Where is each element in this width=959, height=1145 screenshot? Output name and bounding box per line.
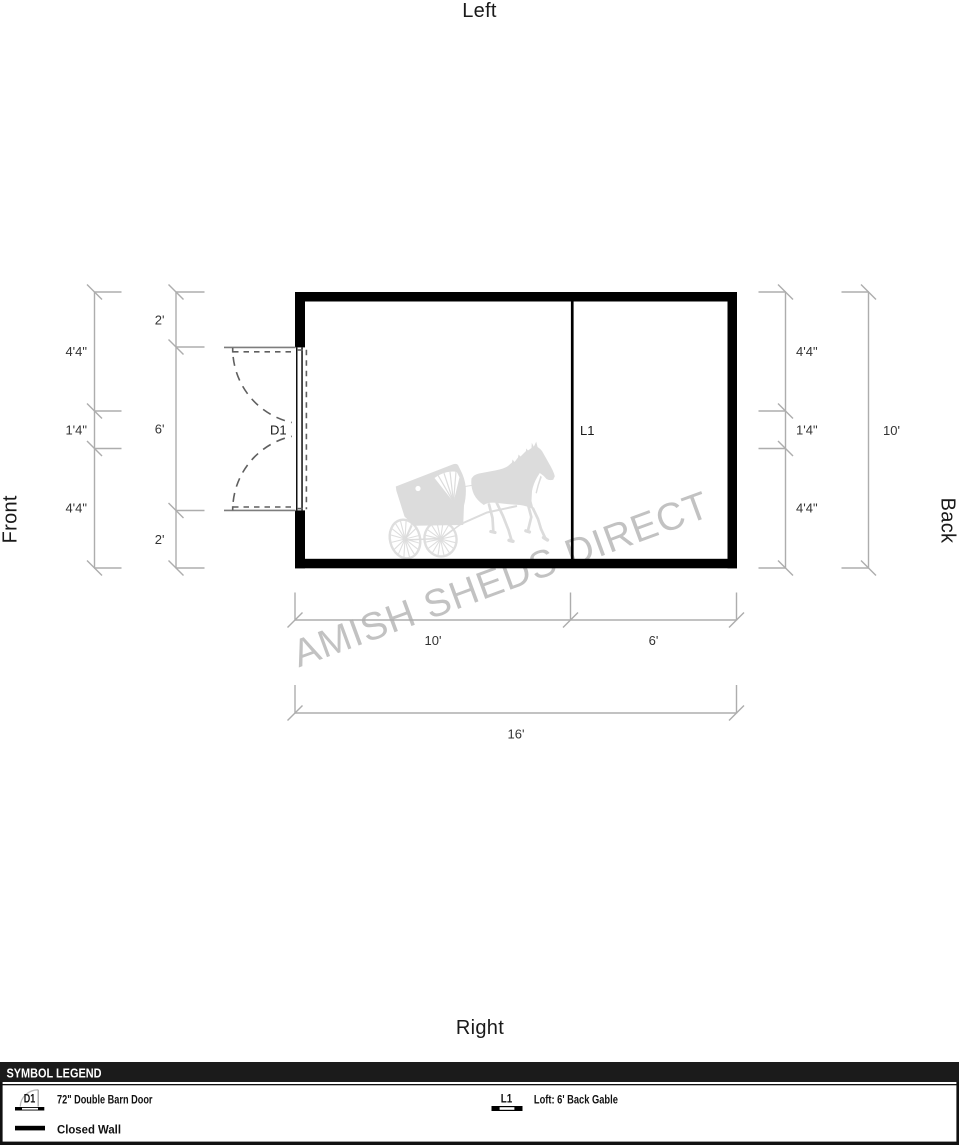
svg-text:10': 10' [425, 633, 442, 648]
svg-text:4'4": 4'4" [65, 501, 87, 516]
svg-text:Back: Back [937, 498, 959, 544]
svg-text:Front: Front [0, 495, 22, 543]
svg-text:72" Double Barn Door: 72" Double Barn Door [57, 1092, 153, 1106]
svg-text:2': 2' [155, 532, 165, 547]
svg-text:D1: D1 [24, 1093, 36, 1105]
svg-text:1'4": 1'4" [65, 423, 87, 438]
svg-text:Right: Right [456, 1017, 504, 1039]
svg-text:Left: Left [462, 0, 497, 22]
svg-text:D1: D1 [270, 423, 287, 438]
svg-text:4'4": 4'4" [65, 344, 87, 359]
svg-text:L1: L1 [580, 423, 594, 438]
svg-text:SYMBOL LEGEND: SYMBOL LEGEND [7, 1067, 102, 1081]
svg-text:2': 2' [155, 313, 165, 328]
svg-text:6': 6' [155, 422, 165, 437]
svg-text:Loft: 6' Back Gable: Loft: 6' Back Gable [534, 1092, 618, 1106]
svg-text:Closed Wall: Closed Wall [57, 1123, 121, 1137]
svg-text:4'4": 4'4" [796, 344, 818, 359]
svg-text:4'4": 4'4" [796, 501, 818, 516]
svg-text:16': 16' [508, 727, 525, 742]
svg-text:6': 6' [649, 633, 659, 648]
svg-text:L1: L1 [501, 1093, 513, 1105]
svg-text:1'4": 1'4" [796, 423, 818, 438]
svg-text:10': 10' [883, 423, 900, 438]
